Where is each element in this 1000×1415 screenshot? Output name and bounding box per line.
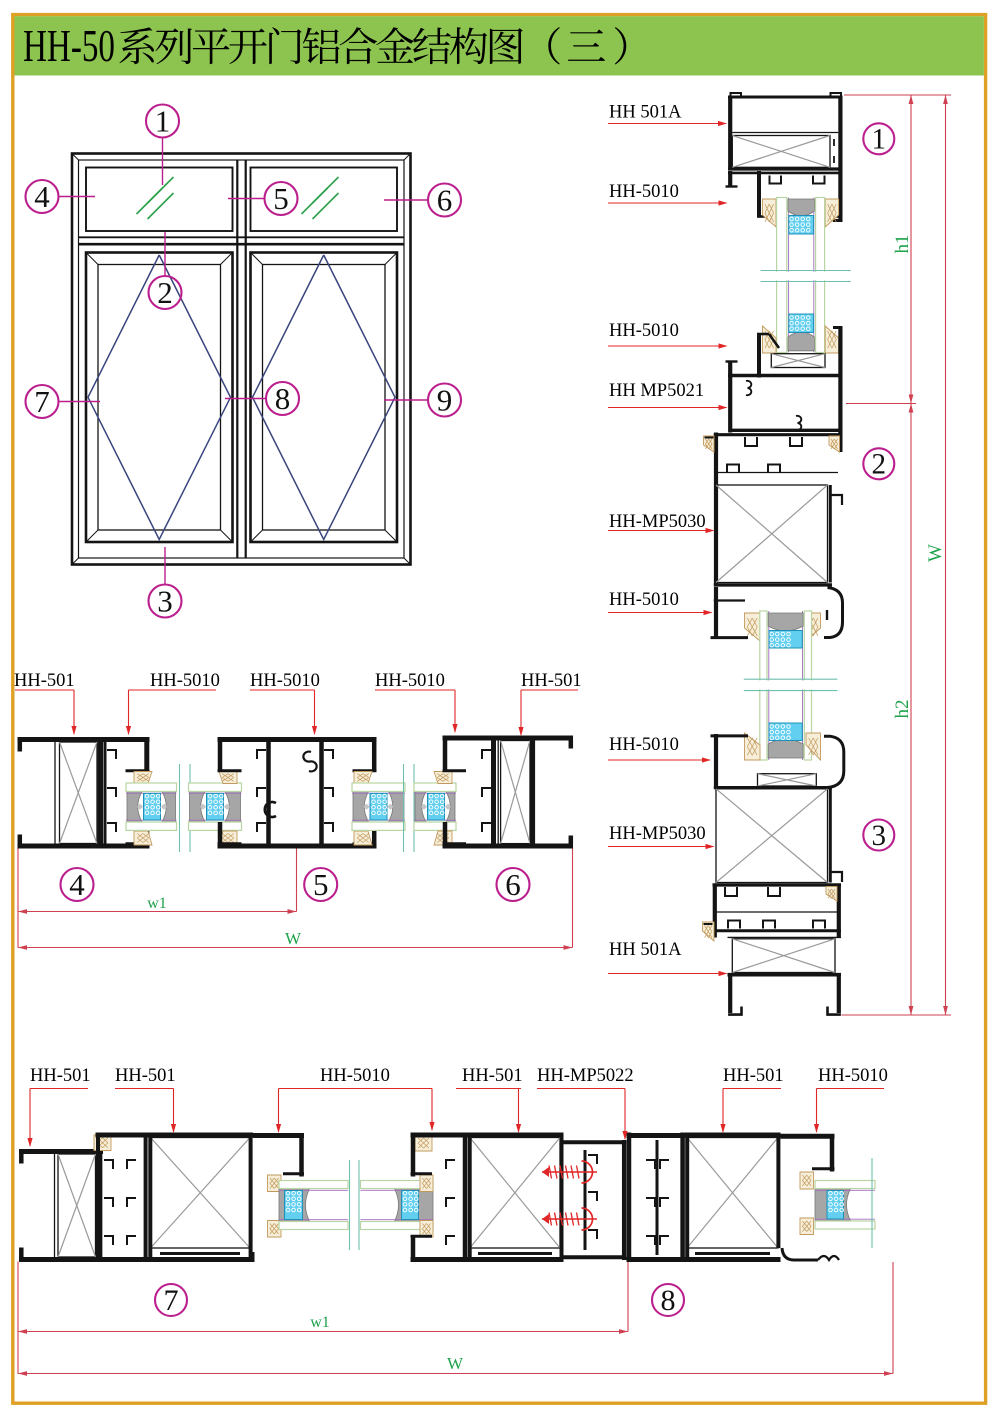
svg-text:HH 501A: HH 501A <box>609 103 682 123</box>
svg-text:HH-5010: HH-5010 <box>320 1066 390 1086</box>
svg-text:HH-5010: HH-5010 <box>150 671 220 691</box>
svg-text:6: 6 <box>505 867 521 902</box>
svg-text:8: 8 <box>275 381 291 416</box>
svg-text:W: W <box>925 544 946 562</box>
svg-text:3: 3 <box>157 583 173 618</box>
svg-text:HH-50: HH-50 <box>23 20 115 71</box>
svg-text:7: 7 <box>163 1283 178 1317</box>
svg-text:3: 3 <box>872 820 887 852</box>
svg-text:6: 6 <box>437 182 453 217</box>
svg-text:1: 1 <box>155 103 171 138</box>
svg-text:HH-5010: HH-5010 <box>609 735 679 755</box>
svg-text:HH-5010: HH-5010 <box>609 182 679 202</box>
svg-text:HH 501A: HH 501A <box>609 940 682 960</box>
svg-text:9: 9 <box>437 382 453 417</box>
svg-text:HH-MP5022: HH-MP5022 <box>537 1066 634 1086</box>
svg-text:5: 5 <box>273 181 289 216</box>
svg-text:HH-501: HH-501 <box>462 1066 523 1086</box>
svg-text:w1: w1 <box>147 895 167 912</box>
svg-text:4: 4 <box>69 867 85 902</box>
svg-text:HH-501: HH-501 <box>521 671 582 691</box>
svg-text:h2: h2 <box>892 700 913 719</box>
svg-text:4: 4 <box>34 179 50 214</box>
svg-text:2: 2 <box>872 449 887 481</box>
svg-text:HH-5010: HH-5010 <box>609 321 679 341</box>
svg-text:W: W <box>447 1354 464 1373</box>
svg-text:HH-5010: HH-5010 <box>818 1066 888 1086</box>
svg-text:5: 5 <box>313 867 329 902</box>
svg-text:HH-501: HH-501 <box>14 671 75 691</box>
svg-text:HH-501: HH-501 <box>30 1066 91 1086</box>
svg-text:HH-5010: HH-5010 <box>609 590 679 610</box>
svg-text:2: 2 <box>157 275 173 310</box>
svg-text:w1: w1 <box>310 1314 330 1331</box>
svg-text:W: W <box>285 929 302 948</box>
svg-text:HH-5010: HH-5010 <box>250 671 320 691</box>
svg-text:HH-MP5030: HH-MP5030 <box>609 824 706 844</box>
svg-text:1: 1 <box>872 124 887 156</box>
svg-text:7: 7 <box>34 384 50 419</box>
svg-text:HH MP5021: HH MP5021 <box>609 381 704 401</box>
svg-text:HH-5010: HH-5010 <box>375 671 445 691</box>
svg-text:8: 8 <box>660 1283 675 1317</box>
svg-text:h1: h1 <box>892 235 913 254</box>
svg-text:HH-MP5030: HH-MP5030 <box>609 512 706 532</box>
svg-text:HH-501: HH-501 <box>723 1066 784 1086</box>
svg-text:HH-501: HH-501 <box>115 1066 176 1086</box>
